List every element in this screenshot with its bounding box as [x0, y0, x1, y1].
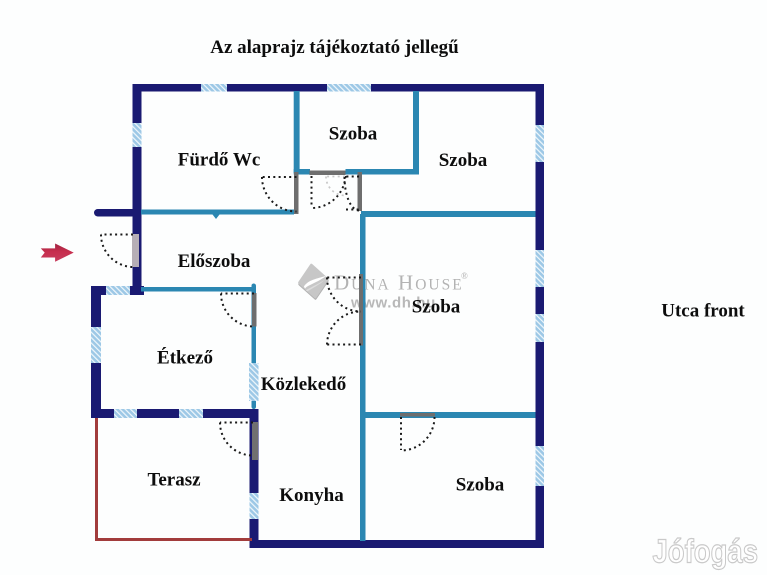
svg-text:®: ® — [461, 271, 468, 281]
svg-text:Fürdő Wc: Fürdő Wc — [178, 150, 261, 171]
svg-text:Jófogás: Jófogás — [653, 533, 759, 570]
svg-text:Konyha: Konyha — [279, 485, 344, 506]
svg-text:Szoba: Szoba — [412, 297, 461, 318]
svg-text:Szoba: Szoba — [329, 124, 378, 145]
svg-text:Az alaprajz tájékoztató jelleg: Az alaprajz tájékoztató jellegű — [210, 37, 459, 58]
svg-text:Előszoba: Előszoba — [178, 251, 251, 272]
svg-text:Terasz: Terasz — [147, 470, 201, 491]
svg-text:Közlekedő: Közlekedő — [261, 374, 347, 395]
svg-text:DUNA HOUSE: DUNA HOUSE — [334, 271, 464, 295]
svg-text:Utca front: Utca front — [661, 301, 745, 322]
svg-text:Szoba: Szoba — [456, 475, 505, 496]
svg-text:Szoba: Szoba — [439, 150, 488, 171]
svg-text:Étkező: Étkező — [157, 347, 213, 369]
